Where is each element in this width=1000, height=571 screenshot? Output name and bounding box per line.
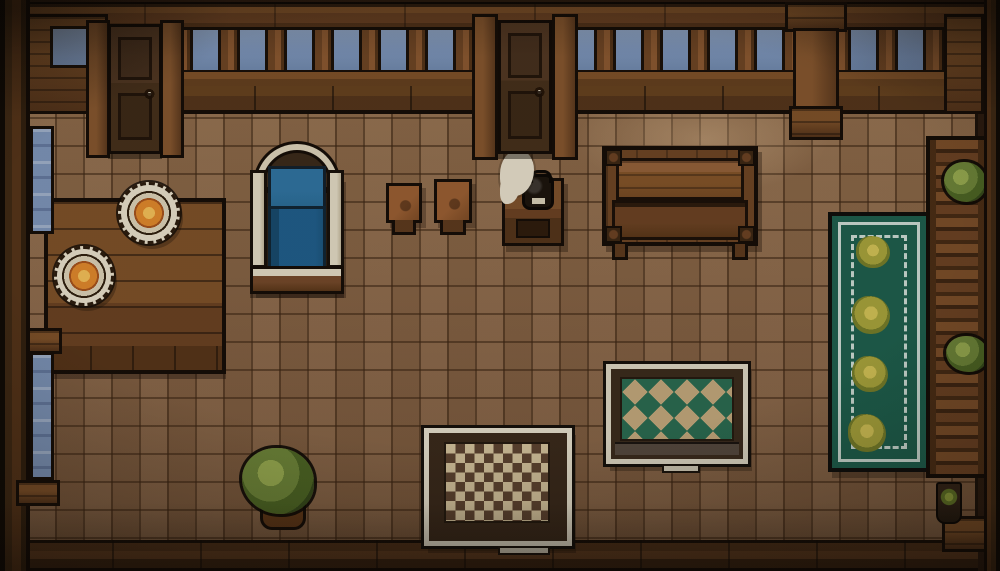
rug-checker-tab: [498, 546, 550, 555]
door-2-post-right: [552, 14, 578, 160]
bed-pillow: [268, 166, 326, 210]
rug-green-flower-3: [852, 356, 888, 392]
plate-large[interactable]: [118, 182, 180, 244]
long-table-corner-bl: [605, 226, 622, 243]
rug-diamond-tab: [662, 464, 700, 473]
small-pot-sprout: [938, 488, 960, 506]
long-table-top: [616, 158, 744, 200]
stool-1[interactable]: [386, 183, 422, 223]
door-2-post-left: [472, 14, 498, 160]
rug-green-flower-1: [856, 236, 890, 268]
long-table-corner-tl: [605, 149, 622, 166]
door-2[interactable]: [498, 20, 552, 154]
long-table-corner-tr: [738, 149, 755, 166]
rug-green-flower-2: [852, 296, 890, 334]
door-1[interactable]: [108, 24, 162, 154]
long-table-leg-left: [612, 244, 628, 260]
scene: [0, 0, 1000, 571]
shelf-plant-mid: [946, 336, 988, 372]
window-sill-left: [16, 480, 60, 506]
door-1-post-right: [160, 20, 184, 158]
bed-rail-right: [327, 170, 344, 268]
window-left-lower: [30, 352, 54, 480]
rug-diamond-field: [620, 377, 734, 441]
long-table-leg-right: [732, 244, 748, 260]
shelf-plant-top: [944, 162, 986, 202]
plate-small[interactable]: [54, 246, 114, 306]
stool-2[interactable]: [434, 179, 472, 223]
bed-footboard: [250, 266, 344, 294]
bed-blanket: [268, 206, 326, 272]
door-1-post-left: [86, 20, 110, 158]
long-table-shelf: [612, 200, 748, 240]
rug-checker-field: [444, 442, 550, 523]
window-left-upper: [30, 126, 54, 234]
center-post-foot: [789, 106, 843, 140]
plant-bush[interactable]: [242, 448, 314, 514]
rug-green-flower-4: [848, 414, 886, 452]
long-table-corner-br: [738, 226, 755, 243]
bed-rail-left: [250, 170, 267, 268]
right-wall: [984, 0, 1000, 571]
center-post: [793, 28, 839, 110]
wall-corner-right: [944, 14, 984, 114]
